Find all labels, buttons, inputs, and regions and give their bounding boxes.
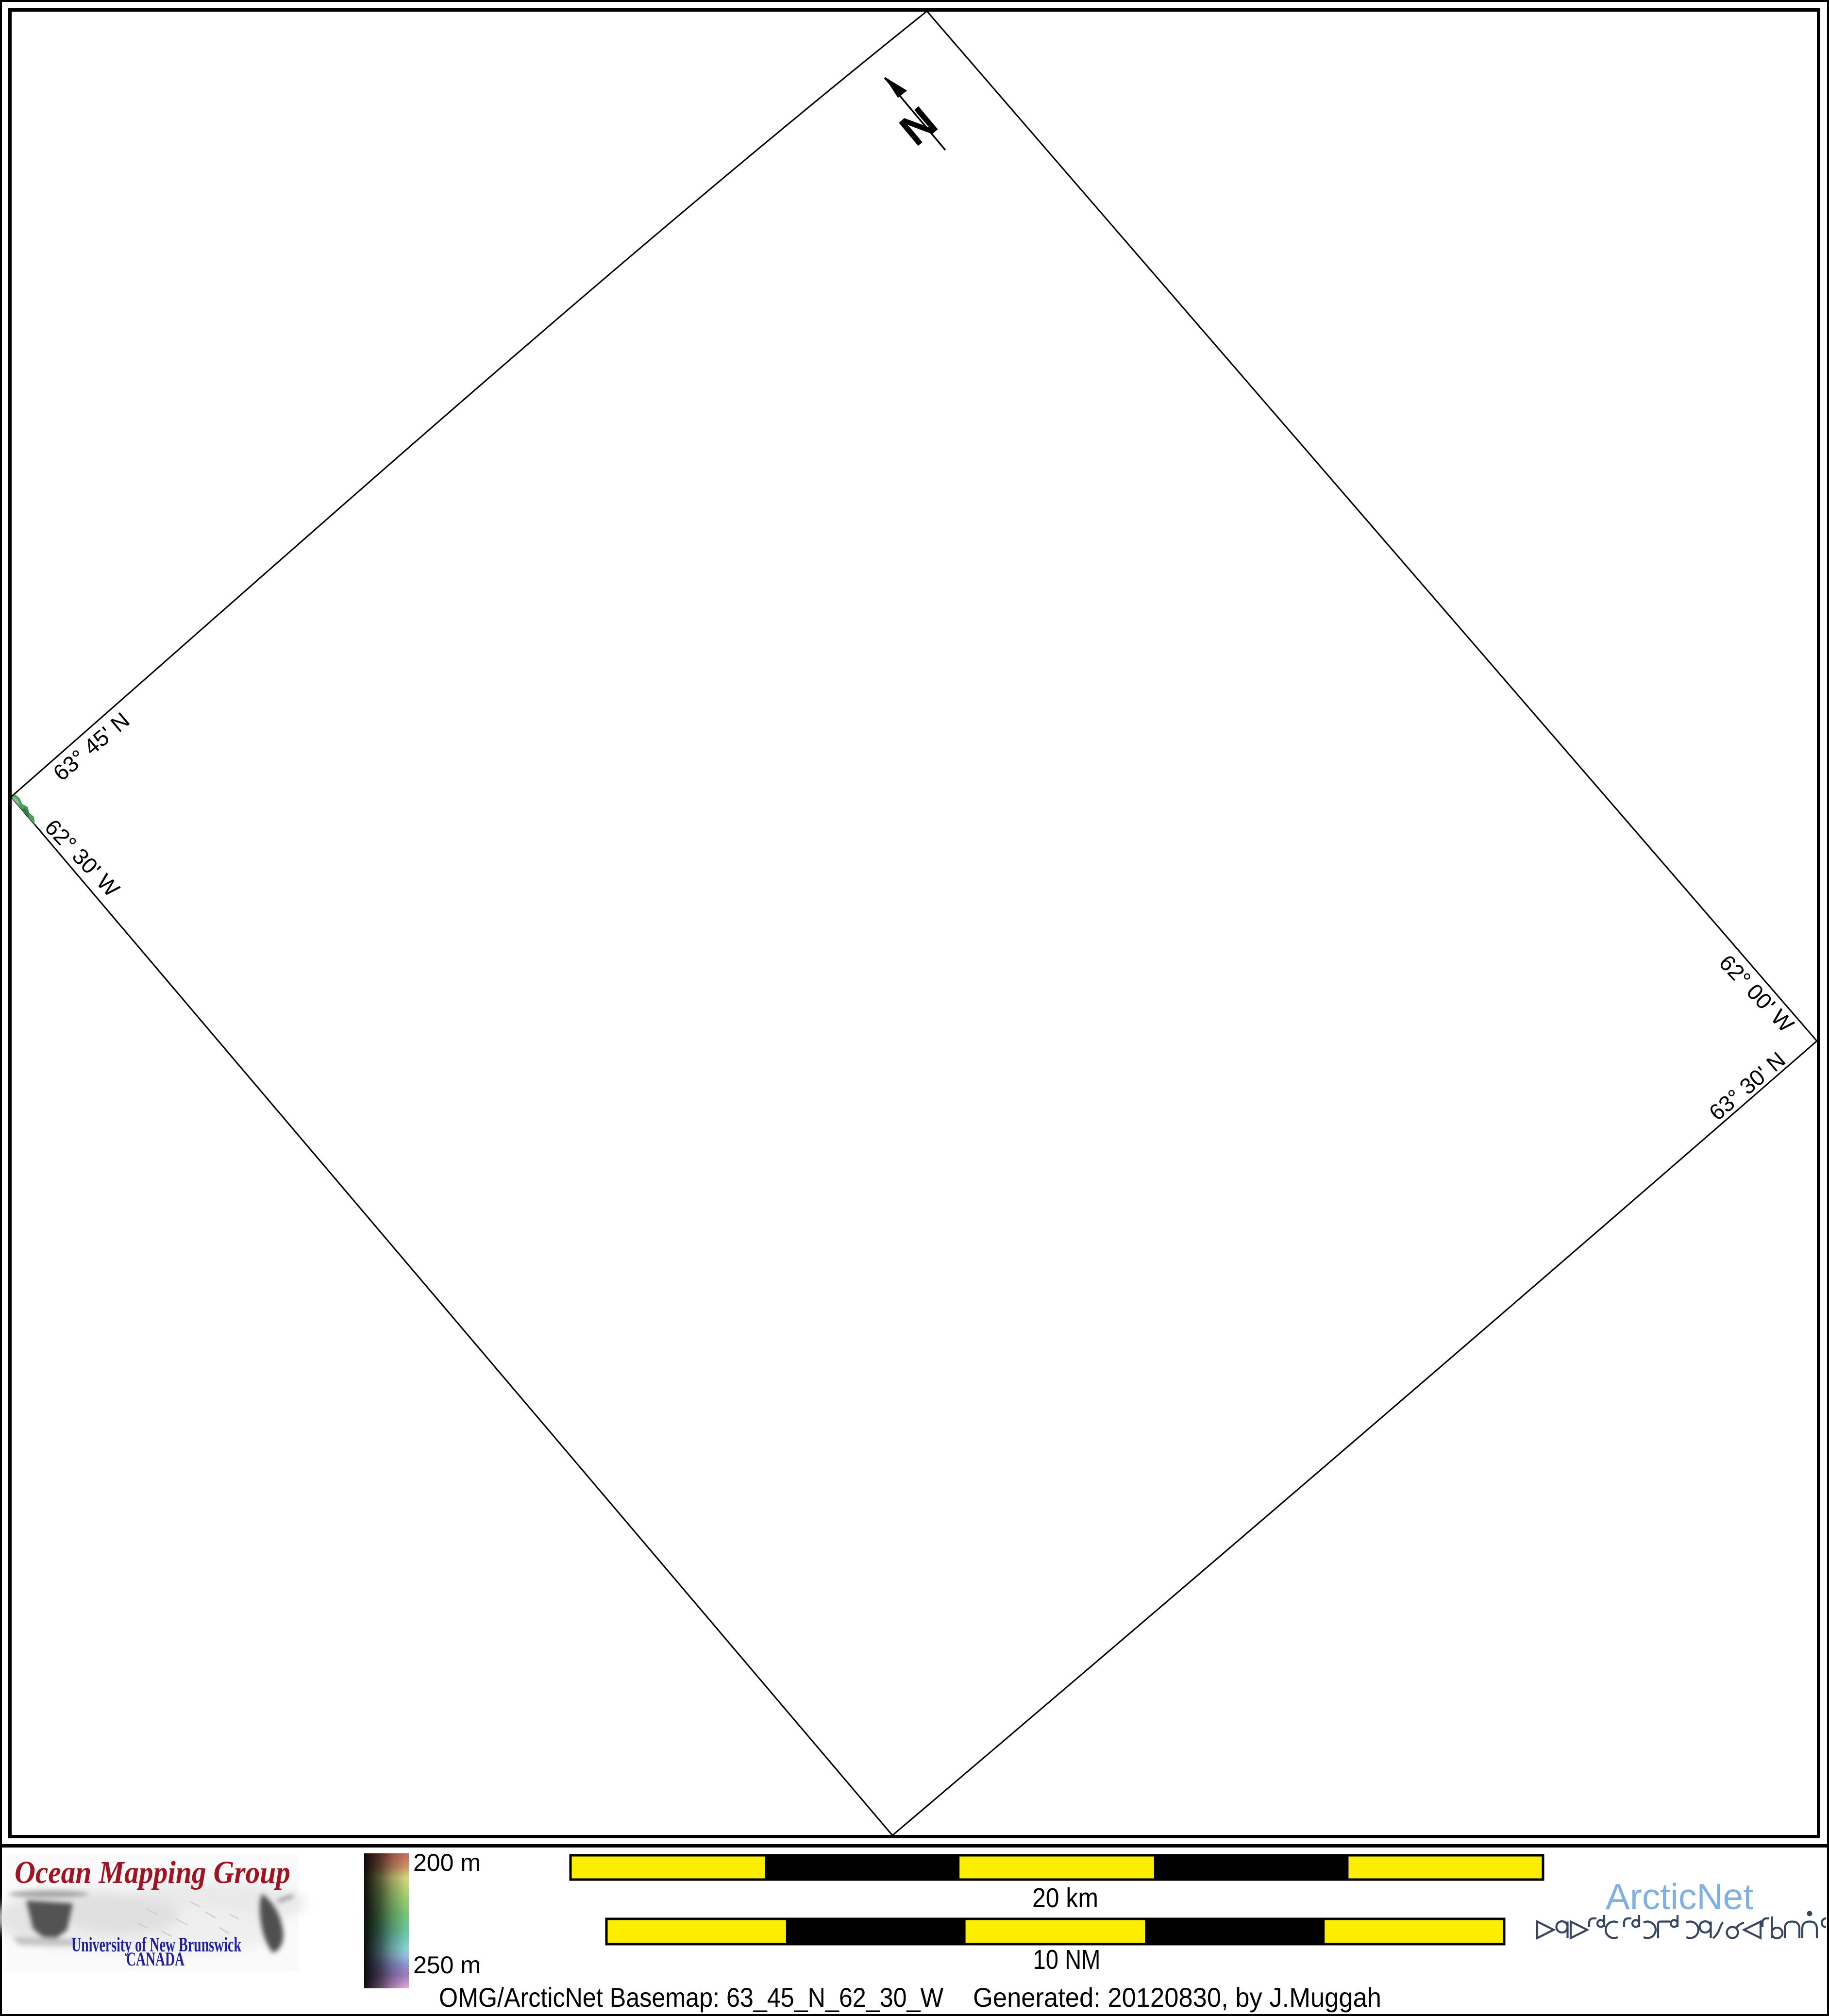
- svg-text:ArcticNet: ArcticNet: [1606, 1876, 1753, 1917]
- svg-text:Ocean Mapping Group: Ocean Mapping Group: [15, 1855, 290, 1890]
- svg-text:CANADA: CANADA: [126, 1948, 185, 1970]
- svg-text:OMG/ArcticNet Basemap: 63_45_N: OMG/ArcticNet Basemap: 63_45_N_62_30_W: [439, 1982, 943, 2013]
- svg-text:10 NM: 10 NM: [1033, 1944, 1101, 1975]
- svg-text:20 km: 20 km: [1032, 1882, 1098, 1914]
- svg-text:200 m: 200 m: [413, 1849, 481, 1876]
- svg-text:250 m: 250 m: [413, 1951, 481, 1979]
- svg-text:Generated: 20120830, by J.Mugg: Generated: 20120830, by J.Muggah: [973, 1982, 1381, 2013]
